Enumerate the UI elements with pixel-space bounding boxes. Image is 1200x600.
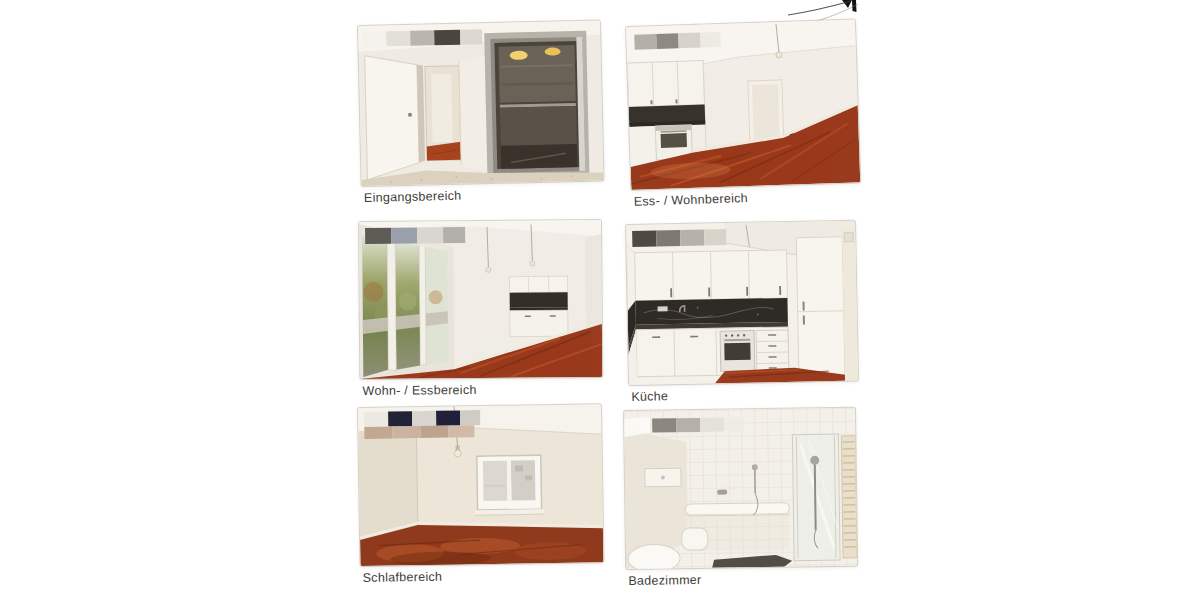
photo-caption: Eingangsbereich [364,185,604,204]
photo-card-wohn-essbereich: Wohn- / Essbereich [359,220,603,398]
photo-card-kueche: Küche [626,221,858,404]
photo-card-eingangsbereich: Eingangsbereich [358,21,604,205]
oven [720,331,755,372]
redaction-blocks [364,410,480,439]
redaction-blocks [634,32,720,50]
redaction-blocks [632,229,726,247]
kitchenette [509,276,568,337]
photo-caption: Küche [631,386,858,404]
photo-caption: Badezimmer [628,571,857,588]
redaction-blocks [365,227,465,244]
kitchen-illustration [626,221,858,385]
dining-living-illustration [626,19,860,190]
photo-badezimmer [624,408,857,569]
photo-card-ess-wohnbereich: Ess- / Wohnbereich [626,19,861,208]
photo-caption: Ess- / Wohnbereich [634,187,861,209]
photo-wohn-essbereich [359,220,602,379]
hall-doorway [748,80,784,145]
elevator [484,31,589,177]
open-door [365,55,426,180]
bedroom-illustration [358,404,603,566]
living-dining-illustration [359,220,602,379]
towel-radiator [841,436,857,558]
photo-card-badezimmer: Badezimmer [624,408,857,588]
cistern-shelf [645,468,681,487]
photo-kueche [626,221,858,385]
photo-caption: Schlafbereich [363,567,604,585]
photo-ess-wohnbereich [626,19,860,190]
window [474,455,545,515]
hallway-opening [425,66,461,161]
photo-eingangsbereich [358,21,604,186]
photo-schlafbereich [358,404,603,566]
redaction-blocks [362,29,482,47]
entrance-hall-illustration [358,21,604,186]
window-front [359,223,454,379]
drawer-unit [756,330,789,375]
photo-caption: Wohn- / Essbereich [362,382,602,398]
scanned-page: Eingangsbereich [0,0,1200,600]
bathroom-illustration [624,408,857,569]
photo-card-schlafbereich: Schlafbereich [358,404,604,585]
tall-cabinet [796,237,845,376]
shower-enclosure [792,434,840,561]
